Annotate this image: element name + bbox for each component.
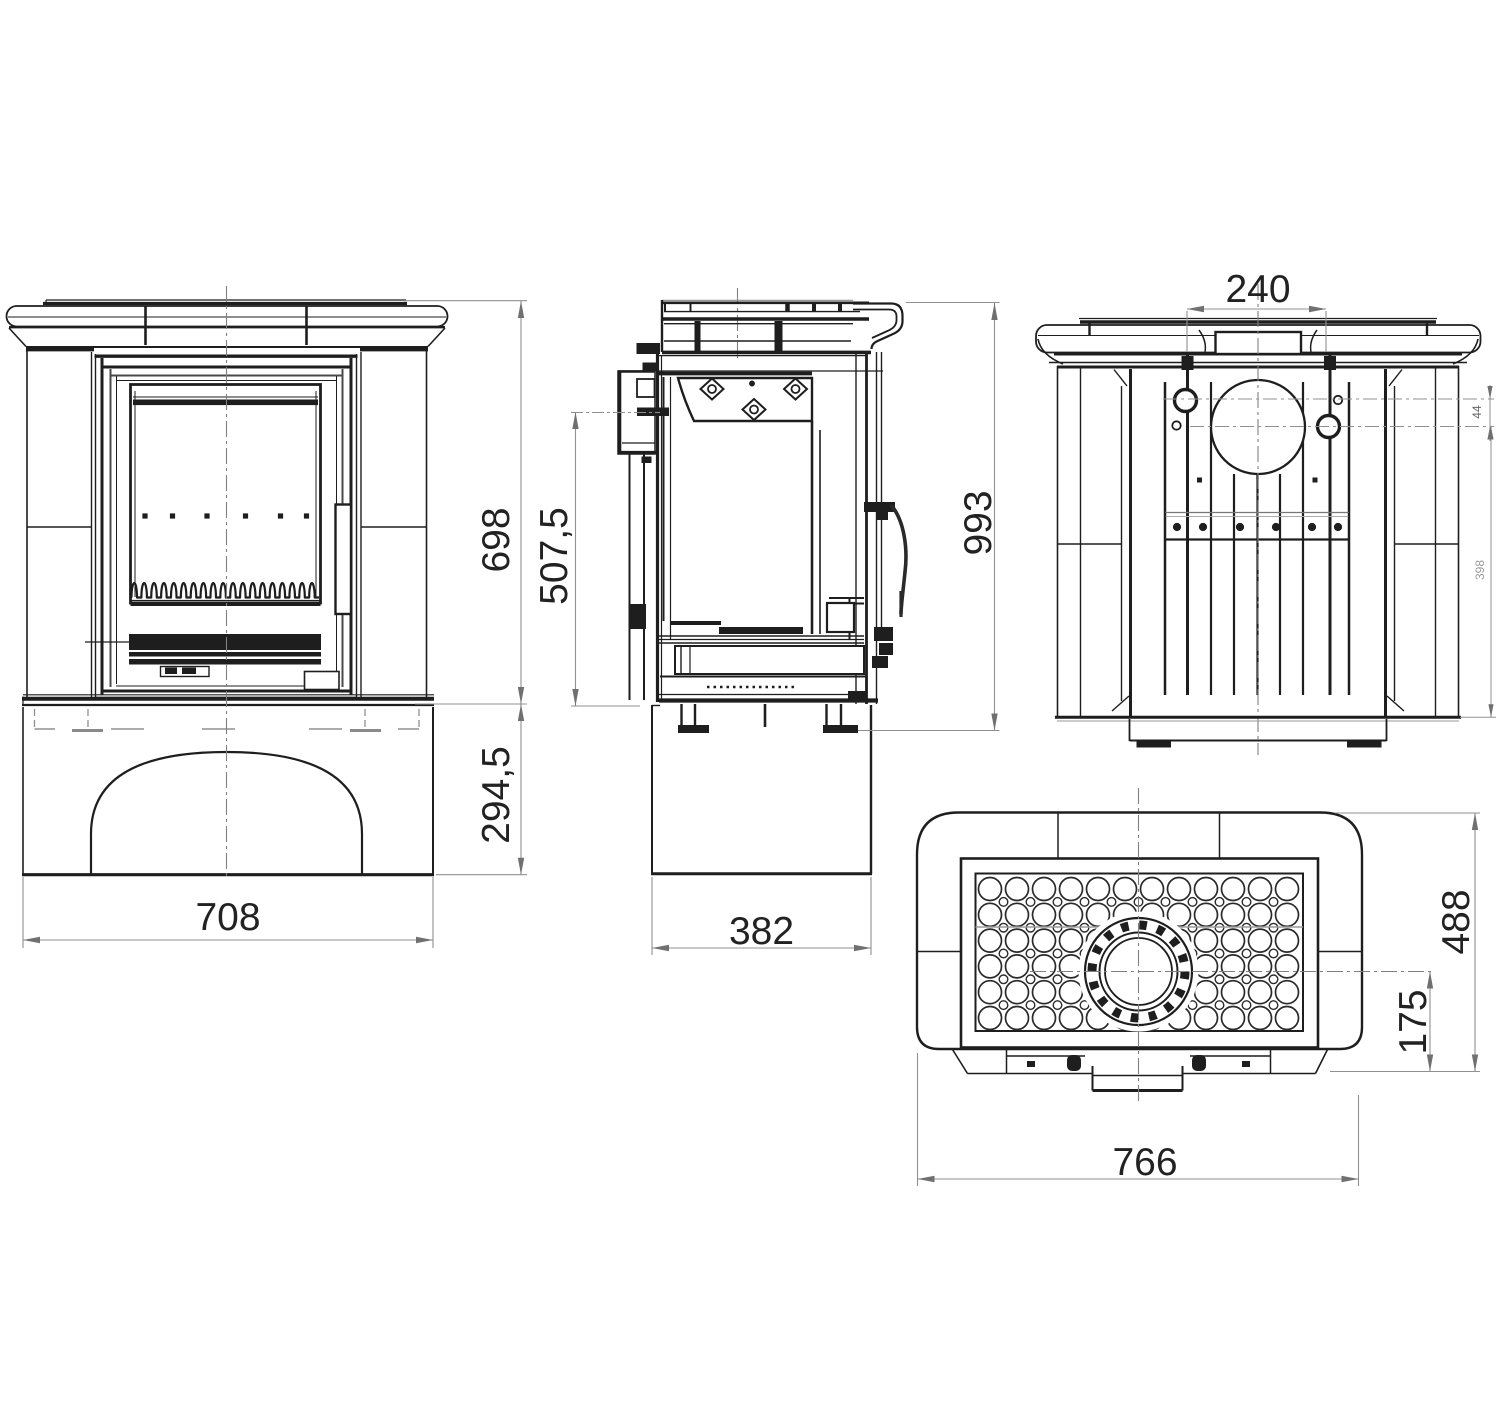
svg-text:698: 698 (475, 507, 518, 572)
svg-text:382: 382 (729, 910, 794, 953)
svg-text:240: 240 (1225, 268, 1290, 311)
svg-text:993: 993 (957, 490, 1000, 555)
svg-text:766: 766 (1112, 1141, 1177, 1184)
svg-text:294,5: 294,5 (475, 746, 518, 844)
svg-text:507,5: 507,5 (533, 507, 576, 605)
svg-text:44: 44 (1470, 405, 1484, 419)
svg-text:175: 175 (1392, 989, 1435, 1054)
svg-text:398: 398 (1473, 560, 1487, 580)
svg-text:708: 708 (195, 896, 260, 939)
svg-text:488: 488 (1435, 889, 1478, 954)
